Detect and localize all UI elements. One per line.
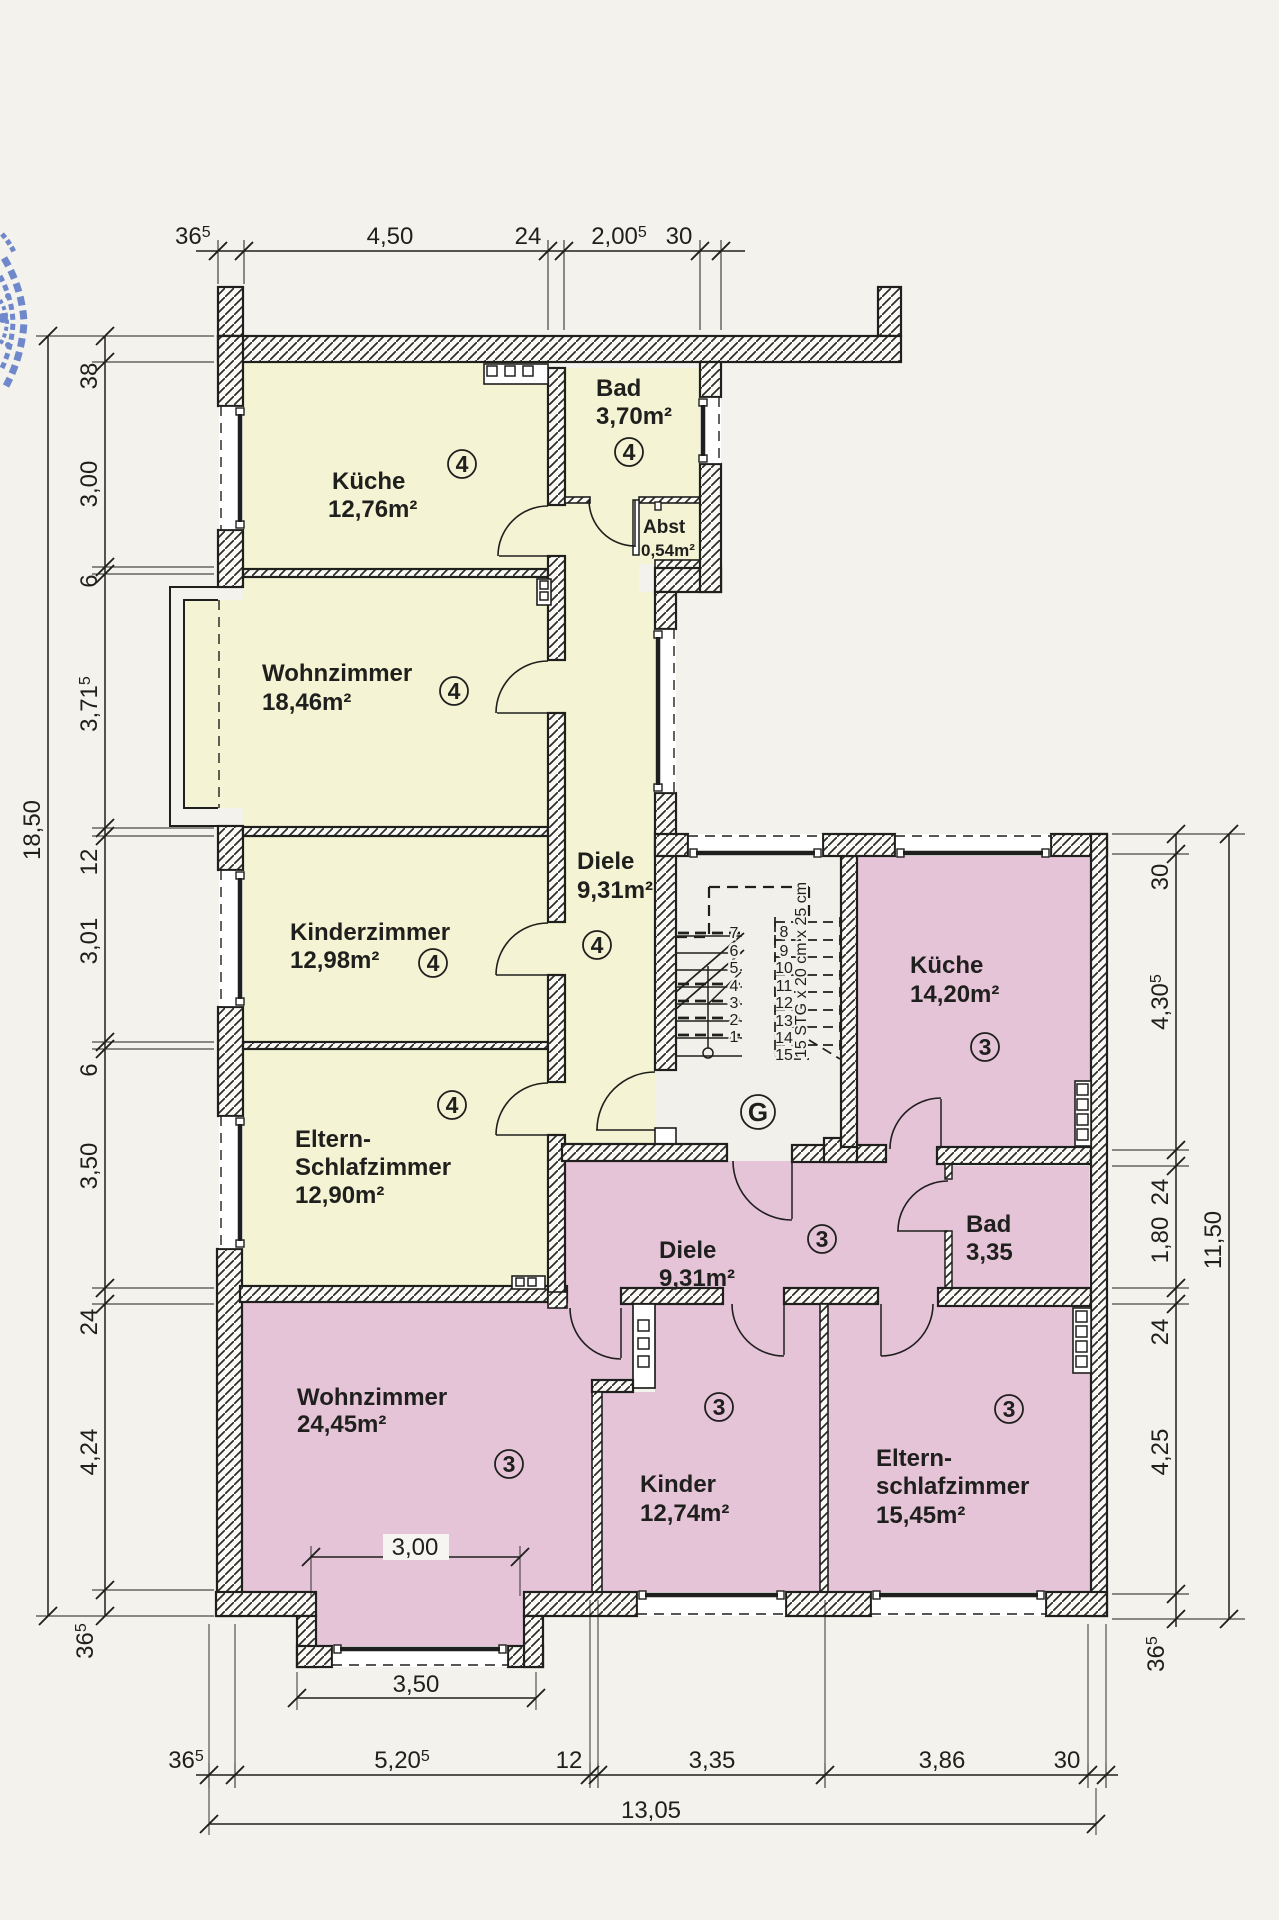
svg-text:12,74m²: 12,74m² bbox=[640, 1500, 729, 1527]
svg-text:18,50: 18,50 bbox=[19, 800, 46, 860]
svg-text:3: 3 bbox=[816, 1226, 829, 1252]
svg-text:3,86: 3,86 bbox=[919, 1747, 966, 1774]
svg-text:30: 30 bbox=[666, 223, 693, 250]
svg-text:14: 14 bbox=[775, 1030, 793, 1047]
svg-text:15 STG x 20 cm x 25 cm: 15 STG x 20 cm x 25 cm bbox=[793, 882, 810, 1058]
svg-text:3,00: 3,00 bbox=[392, 1534, 439, 1561]
svg-text:6: 6 bbox=[76, 1063, 103, 1076]
svg-text:3: 3 bbox=[503, 1451, 516, 1477]
svg-text:14,20m²: 14,20m² bbox=[910, 981, 999, 1008]
svg-text:3: 3 bbox=[730, 995, 739, 1012]
svg-text:Eltern-: Eltern- bbox=[876, 1445, 952, 1472]
svg-text:Küche: Küche bbox=[910, 952, 983, 979]
svg-text:4: 4 bbox=[456, 451, 469, 477]
svg-text:Diele: Diele bbox=[577, 848, 634, 875]
svg-text:Bad: Bad bbox=[966, 1211, 1011, 1238]
svg-text:3: 3 bbox=[979, 1034, 992, 1060]
svg-text:5: 5 bbox=[730, 960, 739, 977]
svg-text:4: 4 bbox=[446, 1092, 459, 1118]
svg-text:Küche: Küche bbox=[332, 468, 405, 495]
svg-text:Wohnzimmer: Wohnzimmer bbox=[262, 660, 412, 687]
svg-text:4: 4 bbox=[427, 950, 440, 976]
svg-text:9,31m²: 9,31m² bbox=[659, 1265, 735, 1292]
svg-text:3,01: 3,01 bbox=[76, 918, 103, 965]
svg-text:3,35: 3,35 bbox=[689, 1747, 736, 1774]
svg-text:6: 6 bbox=[76, 574, 103, 587]
svg-text:15,45m²: 15,45m² bbox=[876, 1502, 965, 1529]
svg-text:2: 2 bbox=[730, 1012, 739, 1029]
svg-text:Kinderzimmer: Kinderzimmer bbox=[290, 919, 450, 946]
svg-text:7: 7 bbox=[730, 925, 739, 942]
svg-text:12,98m²: 12,98m² bbox=[290, 947, 379, 974]
svg-text:3: 3 bbox=[1003, 1396, 1016, 1422]
svg-text:3,50: 3,50 bbox=[393, 1671, 440, 1698]
svg-text:12: 12 bbox=[76, 849, 103, 876]
svg-text:4,50: 4,50 bbox=[367, 223, 414, 250]
svg-text:30: 30 bbox=[1054, 1747, 1081, 1774]
svg-text:24,45m²: 24,45m² bbox=[297, 1411, 386, 1438]
svg-text:G: G bbox=[748, 1097, 768, 1127]
svg-text:4,24: 4,24 bbox=[76, 1429, 103, 1476]
svg-text:12,76m²: 12,76m² bbox=[328, 496, 417, 523]
svg-text:11,50: 11,50 bbox=[1200, 1211, 1227, 1269]
svg-text:10: 10 bbox=[775, 960, 793, 977]
svg-text:13,05: 13,05 bbox=[621, 1797, 681, 1824]
svg-text:1: 1 bbox=[730, 1029, 739, 1046]
svg-text:4: 4 bbox=[448, 678, 461, 704]
svg-text:4: 4 bbox=[730, 978, 739, 995]
svg-text:0,54m²: 0,54m² bbox=[641, 541, 695, 560]
svg-text:11: 11 bbox=[776, 978, 793, 995]
svg-text:18,46m²: 18,46m² bbox=[262, 689, 351, 716]
svg-text:4: 4 bbox=[591, 932, 604, 958]
svg-text:24: 24 bbox=[515, 223, 542, 250]
svg-text:schlafzimmer: schlafzimmer bbox=[876, 1473, 1029, 1500]
svg-text:Abst: Abst bbox=[643, 517, 686, 538]
svg-text:9,31m²: 9,31m² bbox=[577, 877, 653, 904]
svg-text:3,00: 3,00 bbox=[76, 461, 103, 508]
svg-text:13: 13 bbox=[775, 1013, 793, 1030]
svg-text:24: 24 bbox=[1147, 1319, 1174, 1346]
svg-text:3,35: 3,35 bbox=[966, 1239, 1013, 1266]
svg-text:38: 38 bbox=[76, 363, 103, 390]
svg-text:1,80: 1,80 bbox=[1147, 1217, 1174, 1264]
svg-text:8: 8 bbox=[780, 924, 789, 941]
svg-text:Diele: Diele bbox=[659, 1237, 716, 1264]
svg-text:4: 4 bbox=[623, 439, 636, 465]
svg-text:30: 30 bbox=[1147, 864, 1174, 891]
svg-text:3,70m²: 3,70m² bbox=[596, 403, 672, 430]
svg-text:Kinder: Kinder bbox=[640, 1471, 716, 1498]
svg-text:3,50: 3,50 bbox=[76, 1143, 103, 1190]
svg-text:12: 12 bbox=[556, 1747, 583, 1774]
svg-text:3: 3 bbox=[713, 1394, 726, 1420]
svg-text:12,90m²: 12,90m² bbox=[295, 1182, 384, 1209]
svg-text:15: 15 bbox=[775, 1047, 793, 1064]
svg-text:4,25: 4,25 bbox=[1147, 1429, 1174, 1476]
svg-text:6: 6 bbox=[730, 943, 739, 960]
svg-text:Wohnzimmer: Wohnzimmer bbox=[297, 1384, 447, 1411]
svg-text:9: 9 bbox=[780, 943, 789, 960]
svg-text:24: 24 bbox=[76, 1309, 103, 1336]
svg-text:24: 24 bbox=[1147, 1179, 1174, 1206]
svg-text:Eltern-: Eltern- bbox=[295, 1126, 371, 1153]
svg-text:Schlafzimmer: Schlafzimmer bbox=[295, 1154, 451, 1181]
svg-text:Bad: Bad bbox=[596, 375, 641, 402]
svg-text:12: 12 bbox=[775, 995, 793, 1012]
